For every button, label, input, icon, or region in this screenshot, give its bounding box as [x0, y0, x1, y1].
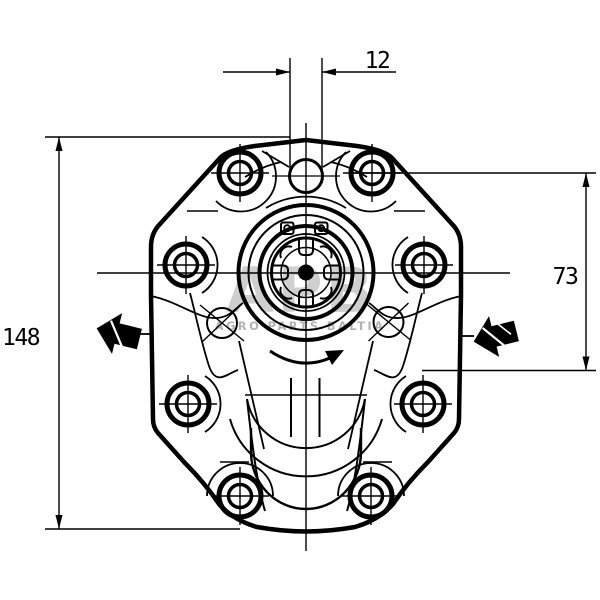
- dimension-right-height: 73: [350, 173, 596, 371]
- flow-arrow-right-icon: [469, 311, 522, 362]
- pump-front-view-svg: APB AGRO PARTS BALTIA: [0, 0, 600, 600]
- dimension-label-73: 73: [553, 264, 578, 290]
- dimension-left-height: 148: [2, 137, 290, 529]
- pilot-hole-right: [367, 303, 411, 341]
- rotation-arrow-icon: [270, 350, 344, 365]
- gear-pump-technical-drawing: APB AGRO PARTS BALTIA: [0, 0, 600, 600]
- watermark-name: AGRO PARTS BALTIA: [215, 319, 386, 333]
- shaft-center-dot: [298, 265, 314, 281]
- bolt-holes: [157, 144, 453, 525]
- flow-arrow-left-icon: [92, 308, 145, 359]
- dimension-label-12: 12: [365, 48, 390, 74]
- centerlines: [97, 123, 510, 551]
- dimension-label-148: 148: [2, 325, 40, 351]
